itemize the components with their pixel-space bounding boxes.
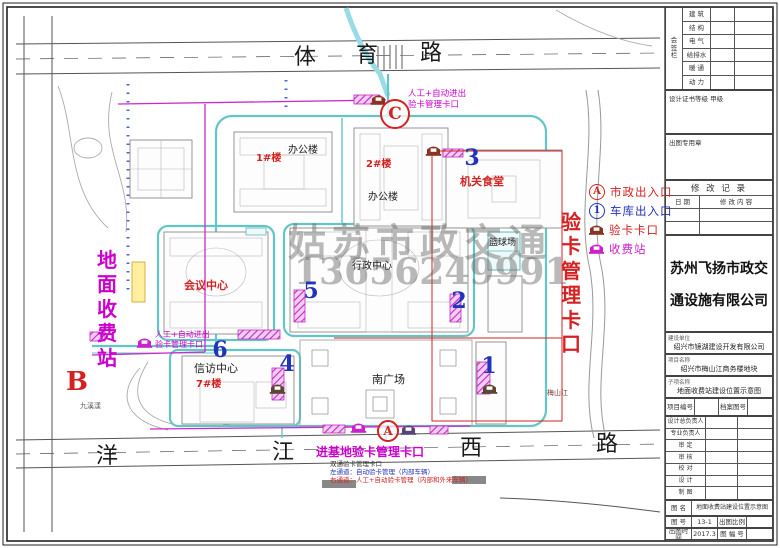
road-top-char-2: 育	[356, 45, 378, 67]
person-empty-cell	[738, 464, 772, 476]
legend-item-2: 验卡卡口	[589, 220, 673, 239]
person-role-label: 审 核	[666, 452, 706, 464]
road-top-char-1: 体	[294, 47, 316, 69]
person-empty-cell	[738, 476, 772, 488]
marker-exit-b: B	[66, 369, 88, 395]
signature-empty-cell	[711, 49, 735, 63]
signature-empty-cell	[735, 62, 772, 76]
legend-circle-icon: A	[589, 184, 605, 200]
person-row-0: 设计总负责人	[666, 417, 772, 429]
titleblock-revision-table: 修 改 记 录 日 期 修 改 内 容	[665, 180, 773, 235]
signature-empty-cell	[735, 22, 772, 36]
subitem-value: 地面收费站建设位置示意图	[666, 386, 772, 396]
titleblock-project-row: 项目名称 绍兴市梅山江商务楼地块	[665, 354, 773, 376]
legend-item-label: 车库出入口	[610, 203, 673, 219]
person-empty-cell	[706, 452, 738, 464]
sheet-size-label: 图 幅 号	[718, 529, 747, 539]
titleblock-signature-table: 会签栏 建 筑结 构电 气给排水暖 通动 力	[665, 7, 773, 90]
titleblock-date-row: 出图时间 2017.3 图 幅 号	[665, 528, 773, 540]
note-north-gate-line2: 验卡管理卡口	[408, 101, 459, 110]
legend-circle-icon: 1	[589, 203, 605, 219]
person-empty-cell	[738, 417, 772, 429]
legend-item-label: 市政出入口	[610, 184, 673, 200]
stamp-label: 出图专用章	[666, 135, 772, 149]
watermark-phone: 13656249991	[294, 254, 570, 290]
sheetname-value: 地面收费站建设位置示意图	[692, 501, 772, 515]
pond-jiuxiyang: 九溪漾	[80, 403, 101, 410]
legend-item-0: A市政出入口	[589, 182, 673, 201]
road-bottom-char-1: 洋	[96, 446, 118, 468]
signature-row-2: 电 气	[683, 35, 772, 49]
signature-empty-cell	[735, 35, 772, 49]
signature-empty-cell	[711, 62, 735, 76]
person-role-label: 设计总负责人	[666, 417, 706, 429]
client-value: 绍兴市镜湖建设开发有限公司	[666, 342, 772, 352]
sheet-no-value: 13-1	[692, 517, 718, 527]
person-role-label: 专业负责人	[666, 429, 706, 441]
note-south-gate-left-lane: 左通道：自动验卡管理（内部车辆）	[330, 469, 434, 476]
signature-row-1: 结 构	[683, 22, 772, 36]
signature-empty-cell	[735, 76, 772, 90]
person-row-1: 专业负责人	[666, 429, 772, 441]
legend-booth-icon	[589, 224, 604, 236]
person-empty-cell	[706, 429, 738, 441]
titleblock-persons-table: 设计总负责人专业负责人审 定审 核校 对设 计制 图	[665, 416, 773, 500]
project-no-label: 项目编号	[666, 399, 695, 415]
revision-title: 修 改 记 录	[666, 181, 772, 196]
bldg-canteen: 机关食堂	[460, 176, 504, 187]
titleblock-company-box: 苏州飞扬市政交 通设施有限公司	[665, 235, 773, 332]
signature-discipline-label: 暖 通	[683, 62, 711, 76]
legend-item-1: 1车库出入口	[589, 201, 673, 220]
signature-discipline-label: 结 构	[683, 22, 711, 36]
person-empty-cell	[706, 487, 738, 499]
marker-exit-a: A	[377, 420, 399, 442]
company-name-line1: 苏州飞扬市政交	[670, 258, 768, 278]
person-role-label: 制 图	[666, 487, 706, 499]
person-row-2: 审 定	[666, 440, 772, 452]
signature-discipline-label: 动 力	[683, 76, 711, 90]
project-label: 项目名称	[666, 355, 772, 364]
toll-booth-icon	[351, 424, 366, 433]
project-no-value	[695, 399, 719, 415]
note-north-gate-line1: 人工+自动进出	[408, 90, 466, 99]
person-role-label: 审 定	[666, 440, 706, 452]
signature-empty-cell	[711, 8, 735, 22]
person-empty-cell	[738, 452, 772, 464]
titleblock-client-row: 建设单位 绍兴市镜湖建设开发有限公司	[665, 332, 773, 354]
signature-row-0: 建 筑	[683, 8, 772, 22]
note-south-gate-title: 进基地验卡管理卡口	[316, 446, 424, 458]
bldg-office-2-label: 办公楼	[368, 193, 398, 203]
road-bottom-char-3: 西	[460, 438, 482, 460]
revision-col-desc: 修 改 内 容	[700, 196, 772, 209]
archive-no-value	[748, 399, 772, 415]
project-value: 绍兴市梅山江商务楼地块	[666, 364, 772, 374]
legend-booth-icon	[589, 243, 604, 255]
marker-garage-2: 2	[451, 290, 466, 312]
signature-row-4: 暖 通	[683, 62, 772, 76]
archive-no-label: 档案图号	[719, 399, 748, 415]
signature-empty-cell	[735, 49, 772, 63]
river-meishanjiang: 梅山江	[547, 390, 568, 397]
marker-garage-1: 1	[481, 355, 496, 377]
sheetname-label: 图 名	[666, 501, 692, 515]
marker-garage-3: 3	[464, 147, 479, 169]
person-empty-cell	[738, 429, 772, 441]
signature-discipline-label: 电 气	[683, 35, 711, 49]
signature-empty-cell	[711, 35, 735, 49]
scale-label: 出图比例	[718, 517, 747, 527]
legend-item-label: 收费站	[609, 241, 647, 257]
area-south-plaza: 南广场	[372, 374, 405, 385]
marker-exit-c: C	[380, 99, 410, 129]
signature-empty-cell	[711, 22, 735, 36]
signature-row-3: 给排水	[683, 49, 772, 63]
bldg-office-1-label: 办公楼	[288, 146, 318, 156]
titleblock-stamp-box: 出图专用章	[665, 134, 773, 180]
marker-garage-4: 4	[279, 353, 294, 375]
signature-empty-cell	[735, 8, 772, 22]
titleblock-cert-box: 设计证书等级 甲级	[665, 90, 773, 134]
marker-garage-6: 6	[212, 339, 227, 361]
sheet-size-value	[747, 529, 772, 539]
signature-discipline-label: 给排水	[683, 49, 711, 63]
company-name-line2: 通设施有限公司	[670, 290, 768, 310]
titleblock-number-row: 图 号 13-1 出图比例	[665, 516, 773, 528]
legend-item-3: 收费站	[589, 239, 673, 258]
road-bottom-char-4: 路	[596, 434, 618, 456]
note-west-gate-line1: 人工+自动进出	[155, 331, 210, 339]
person-empty-cell	[706, 476, 738, 488]
bldg-7-number: 7#楼	[196, 380, 221, 390]
bldg-1-number: 1#楼	[256, 154, 281, 164]
person-row-5: 设 计	[666, 476, 772, 488]
person-empty-cell	[706, 417, 738, 429]
titleblock-subitem-row: 子项名称 地面收费站建设位置示意图	[665, 376, 773, 398]
person-row-6: 制 图	[666, 487, 772, 499]
issue-date-value: 2017.3	[692, 529, 718, 539]
zone-ground-toll-station: 地面收费站	[96, 248, 118, 370]
person-empty-cell	[738, 440, 772, 452]
signature-column-label: 会签栏	[670, 37, 677, 61]
cert-label: 设计证书等级 甲级	[666, 91, 772, 105]
marker-garage-5: 5	[303, 280, 318, 302]
scale-value	[747, 517, 772, 527]
client-label: 建设单位	[666, 333, 772, 342]
signature-discipline-label: 建 筑	[683, 8, 711, 22]
signature-empty-cell	[711, 76, 735, 90]
sheet-no-label: 图 号	[666, 517, 692, 527]
toll-booth-icon	[137, 339, 152, 348]
person-row-4: 校 对	[666, 464, 772, 476]
legend: A市政出入口1车库出入口验卡卡口收费站	[589, 182, 673, 258]
person-empty-cell	[706, 440, 738, 452]
note-south-gate-sub: 双通验卡管理卡口	[330, 461, 382, 468]
person-row-3: 审 核	[666, 452, 772, 464]
note-west-gate-line2: 验卡管理卡口	[155, 341, 203, 349]
person-role-label: 设 计	[666, 476, 706, 488]
person-role-label: 校 对	[666, 464, 706, 476]
bldg-2-number: 2#楼	[366, 160, 391, 170]
person-empty-cell	[738, 487, 772, 499]
signature-row-5: 动 力	[683, 76, 772, 90]
subitem-label: 子项名称	[666, 377, 772, 386]
drawing-sheet: 体育路洋江西路地面收费站验卡管理卡口办公楼1#楼2#楼办公楼机关食堂会议中心行政…	[0, 0, 780, 548]
road-top-char-3: 路	[420, 43, 442, 65]
titleblock-ids-row: 项目编号 档案图号	[665, 398, 773, 416]
note-south-gate-right-lane: 右通道：人工+自动验卡管理（内部和外来车辆）	[330, 477, 472, 484]
bldg-petition-center: 信访中心	[194, 363, 238, 374]
person-empty-cell	[706, 464, 738, 476]
titleblock-sheetname-row: 图 名 地面收费站建设位置示意图	[665, 500, 773, 516]
bldg-conference-center: 会议中心	[184, 280, 228, 291]
legend-item-label: 验卡卡口	[609, 222, 659, 238]
issue-date-label: 出图时间	[666, 529, 692, 539]
road-bottom-char-2: 江	[272, 442, 294, 464]
